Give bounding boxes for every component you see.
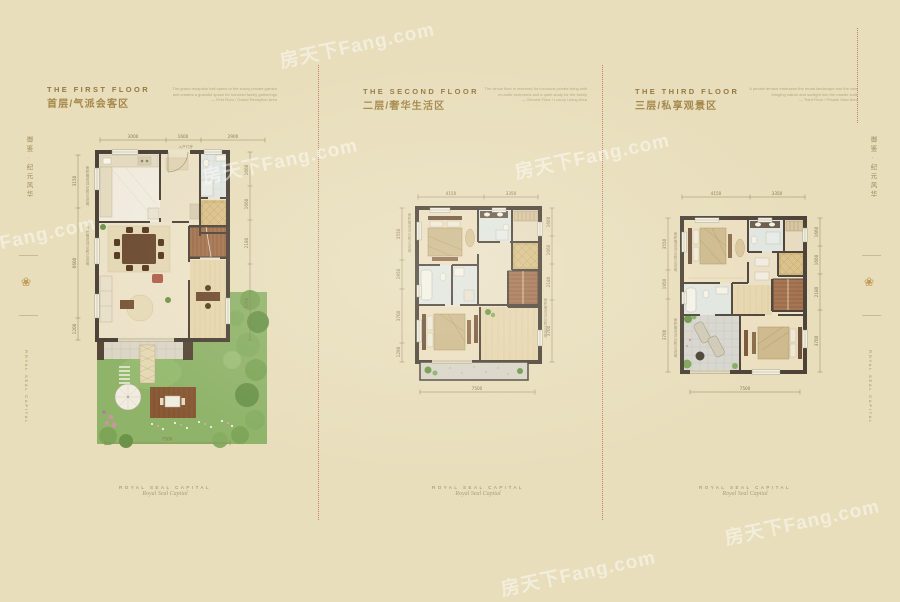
dim-label: 1290 <box>396 346 401 357</box>
plan3-side-note: 面积赠送详见附注说明 <box>674 318 679 358</box>
dim-label: 3700 <box>244 297 249 308</box>
right-edge-vertical-text-cn: 御鉴·纪元风华 <box>867 136 877 200</box>
dim-label: 4150 <box>446 191 457 196</box>
panel1-fine-print: The grand reception hall opens to the su… <box>147 86 277 103</box>
bedroom-bottom-right <box>740 315 805 370</box>
panel3-footer: ROYAL SEAL CAPITAL Royal Seal Capital <box>675 485 815 497</box>
dim-label: 2180 <box>814 286 819 297</box>
footer-brand-caps: ROYAL SEAL CAPITAL <box>408 485 548 490</box>
tv-cabinet <box>744 330 748 356</box>
dim-label: 3150 <box>72 175 77 186</box>
bathtub <box>686 288 696 312</box>
dining-area <box>100 224 170 272</box>
panel3-title-cn: 三层/私享观景区 <box>635 97 717 112</box>
terrace <box>683 315 741 371</box>
dim-label: 1660 <box>814 226 819 237</box>
washbasin <box>216 155 226 161</box>
dim-label: 6600 <box>72 257 77 268</box>
staircase <box>773 279 804 311</box>
watermark: 房天下Fang.com <box>498 542 658 601</box>
bed <box>428 228 462 256</box>
dim-label: 1950 <box>662 278 667 289</box>
right-edge-rule-top <box>862 255 881 256</box>
fine-print-line: — Third Floor / Private View Area <box>728 97 858 103</box>
dim-label: 2180 <box>244 237 249 248</box>
plant <box>485 309 491 315</box>
panel2-title-cn: 二层/奢华生活区 <box>363 97 445 112</box>
footer-brand-script: Royal Seal Capital <box>408 491 548 497</box>
closet-top-right <box>512 210 540 242</box>
bathtub <box>421 270 432 300</box>
dim-label: 1200 <box>72 323 77 334</box>
hall-table <box>755 272 769 280</box>
staircase <box>508 271 538 307</box>
shower <box>201 180 213 196</box>
chair <box>205 303 211 309</box>
first-floor-plan: 3000 1600 2900 3150 6600 1200 1660 1660 … <box>50 125 280 455</box>
plant <box>732 363 738 369</box>
dim-label: 3350 <box>772 191 783 196</box>
dim-label: 2180 <box>546 276 551 287</box>
fine-print-line: — Second Floor / Luxury Living Area <box>457 97 587 103</box>
footer-brand-script: Royal Seal Capital <box>95 491 235 497</box>
panel-divider-1 <box>318 65 319 520</box>
bathroom-top <box>748 220 784 252</box>
panel3-title-en: THE THIRD FLOOR <box>635 87 739 96</box>
gold-tile-room <box>778 252 805 276</box>
panel-divider-2 <box>602 65 603 520</box>
plan1-side-note: 面积赠送详见附注说明 <box>86 166 91 206</box>
dim-label: 1660 <box>546 216 551 227</box>
second-floor-plan: 4150 3350 1660 1660 2180 3700 3550 1950 … <box>378 185 570 400</box>
dim-label: 1660 <box>244 198 249 209</box>
flower-ornament-icon: ❀ <box>21 275 31 289</box>
shower <box>496 230 508 240</box>
bed-bench <box>752 332 756 354</box>
panel2-fine-print: The whole floor is reserved for luxuriou… <box>457 86 587 103</box>
bedroom-top-left <box>684 220 748 283</box>
bed <box>434 314 465 350</box>
chaise <box>466 229 475 247</box>
flower-ornament-icon: ❀ <box>864 275 874 289</box>
bedroom-top-left <box>419 210 478 265</box>
dim-label: 3000 <box>128 134 139 139</box>
bed-bench <box>728 234 732 258</box>
staircase <box>189 227 227 257</box>
balcony <box>420 362 528 380</box>
entry-hall <box>160 154 200 222</box>
hall-table <box>755 258 769 266</box>
plan1-side-note: 面积赠送详见附注说明 <box>86 226 91 266</box>
left-edge-rule-top <box>19 255 38 256</box>
dim-label: 4150 <box>711 191 722 196</box>
master-bedroom <box>419 307 480 360</box>
trellis <box>140 345 155 383</box>
watermark: 房天下Fang.com <box>722 491 882 550</box>
dim-label: 3350 <box>506 191 517 196</box>
dim-label: 3700 <box>814 335 819 346</box>
plan2-side-note: 面积赠送详见附注说明 <box>544 298 549 338</box>
panel2-footer: ROYAL SEAL CAPITAL Royal Seal Capital <box>408 485 548 497</box>
left-edge-vertical-text-en: ROYAL SEAL CAPITAL <box>24 350 29 424</box>
footer-brand-caps: ROYAL SEAL CAPITAL <box>95 485 235 490</box>
dim-label: 2900 <box>228 134 239 139</box>
bathroom-middle <box>419 265 478 305</box>
right-edge-vertical-text-en: ROYAL SEAL CAPITAL <box>868 350 873 424</box>
building-third-floor <box>682 218 807 374</box>
terrace-table <box>696 352 705 361</box>
plant <box>491 313 495 317</box>
bathroom-top <box>478 210 512 242</box>
dining-table <box>122 234 156 264</box>
washbasin <box>716 287 728 294</box>
toilet <box>703 290 709 298</box>
right-edge-rule-bottom <box>862 315 881 316</box>
footer-brand-caps: ROYAL SEAL CAPITAL <box>675 485 815 490</box>
shower <box>766 232 780 244</box>
accent-chair <box>152 274 163 283</box>
dim-label: 7500 <box>162 437 173 442</box>
bed <box>758 327 789 359</box>
dim-label: 1600 <box>178 134 189 139</box>
sink <box>103 158 111 164</box>
dim-label: 3550 <box>662 238 667 249</box>
washbasin <box>454 268 464 276</box>
watermark: 房天下Fang.com <box>277 14 437 73</box>
building-second-floor <box>417 208 542 380</box>
garden-umbrella <box>115 384 141 410</box>
bathroom <box>200 154 228 198</box>
dim-label: 1660 <box>546 244 551 255</box>
sofa <box>100 276 112 322</box>
study <box>190 260 228 338</box>
fine-print-line: — First Floor / Grand Reception Area <box>147 97 277 103</box>
plan3-side-note: 面积赠送详见附注说明 <box>674 232 679 272</box>
wood-corridor <box>732 285 772 315</box>
gold-tile-room <box>512 242 540 270</box>
toilet <box>751 236 757 244</box>
dim-label: 7500 <box>472 386 483 391</box>
desk <box>196 292 220 301</box>
deck-table <box>165 396 180 407</box>
dim-label: 7500 <box>740 386 751 391</box>
dim-label: 1660 <box>814 254 819 265</box>
plant <box>100 224 106 230</box>
bathroom-middle <box>684 285 732 315</box>
footer-brand-script: Royal Seal Capital <box>675 491 815 497</box>
wood-deck <box>150 387 196 418</box>
toilet <box>203 159 209 167</box>
coffee-table <box>120 300 134 309</box>
bed <box>700 228 726 264</box>
watermark: 房天下Fang.com <box>512 125 672 184</box>
left-edge-rule-bottom <box>19 315 38 316</box>
panel1-footer: ROYAL SEAL CAPITAL Royal Seal Capital <box>95 485 235 497</box>
dim-label: 1950 <box>396 268 401 279</box>
chaise <box>736 239 745 257</box>
dim-label: 3700 <box>662 329 667 340</box>
closet-top-right <box>784 220 805 252</box>
plant <box>165 297 171 303</box>
stove <box>138 157 151 165</box>
washer <box>464 290 474 301</box>
wood-room-bottom-right <box>480 307 538 360</box>
entry-label: 入户门厅 <box>179 144 194 149</box>
shoe-cabinet <box>190 204 199 219</box>
panel1-title-cn: 首层/气派会客区 <box>47 95 129 110</box>
plant <box>684 315 692 323</box>
third-floor-plan: 4150 3350 1660 1660 2180 3700 3550 1950 … <box>645 185 845 400</box>
panel1-title-en: THE FIRST FLOOR <box>47 85 150 94</box>
hall <box>478 242 512 305</box>
left-edge-vertical-text-cn: 御鉴·纪元风华 <box>23 136 33 200</box>
dim-label: 3550 <box>396 228 401 239</box>
tv-cabinet <box>474 315 478 343</box>
dim-label: 3700 <box>396 310 401 321</box>
edge-dotted-line <box>857 28 858 123</box>
plan2-side-note: 面积赠送详见附注说明 <box>408 213 413 253</box>
building-first-floor <box>95 150 230 343</box>
bed-bench <box>467 320 471 344</box>
dim-label: 1660 <box>244 164 249 175</box>
fridge <box>148 208 159 219</box>
kitchen <box>99 154 160 222</box>
toilet <box>440 273 446 281</box>
bed-bench <box>432 257 458 261</box>
panel3-fine-print: A private terrace embraces the broad lan… <box>728 86 858 103</box>
chair <box>205 285 211 291</box>
